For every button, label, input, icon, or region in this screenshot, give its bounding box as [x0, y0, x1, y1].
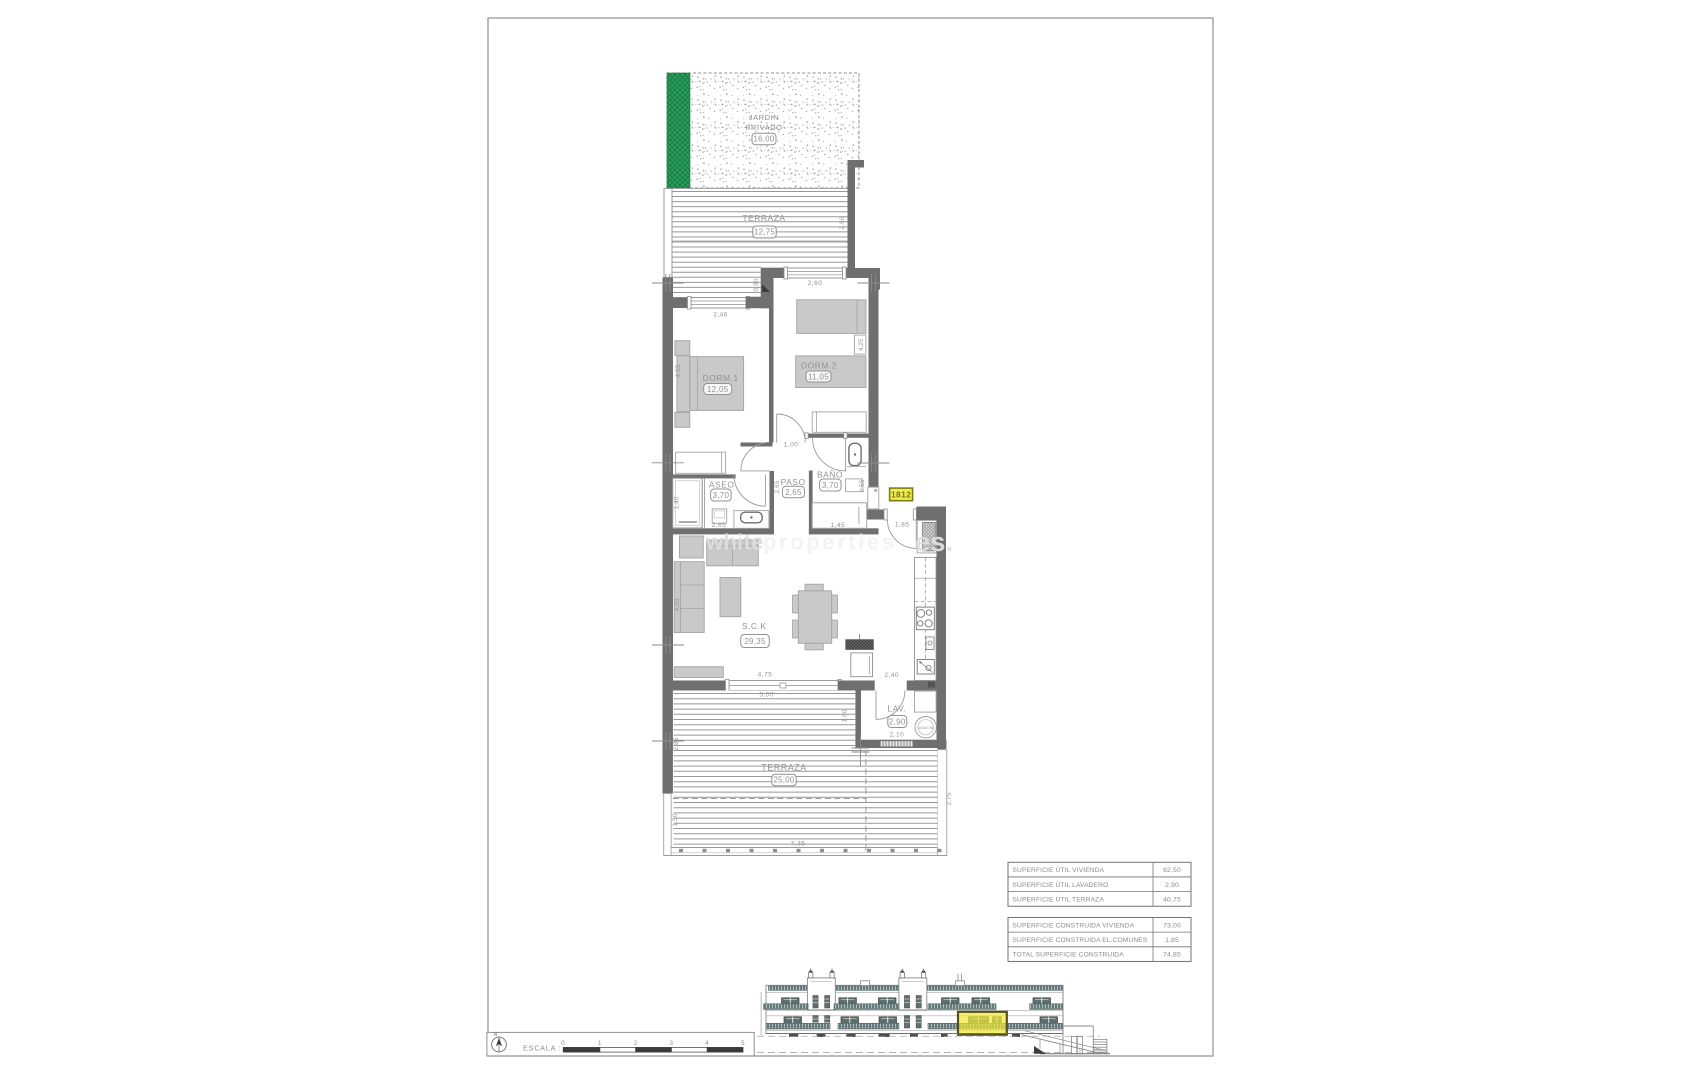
- svg-text:TERRAZA: TERRAZA: [742, 213, 785, 223]
- svg-text:5: 5: [741, 1040, 745, 1047]
- svg-text:3: 3: [669, 1040, 673, 1047]
- svg-text:SUPERFICIE CONSTRUIDA VIVIENDA: SUPERFICIE CONSTRUIDA VIVIENDA: [1013, 922, 1135, 929]
- svg-text:white: white: [705, 530, 764, 555]
- svg-text:2,75: 2,75: [946, 792, 953, 805]
- svg-text:ASEO: ASEO: [709, 480, 735, 490]
- svg-text:1,40: 1,40: [673, 496, 680, 509]
- svg-text:2,10: 2,10: [890, 732, 905, 739]
- svg-text:properties: properties: [763, 530, 897, 555]
- svg-text:2,90: 2,90: [1165, 882, 1179, 889]
- svg-text:TERRAZA: TERRAZA: [761, 763, 807, 773]
- svg-text:40,75: 40,75: [1163, 897, 1181, 904]
- svg-text:S.C.K: S.C.K: [742, 621, 767, 631]
- svg-text:SUPERFICIE ÚTIL TERRAZA: SUPERFICIE ÚTIL TERRAZA: [1013, 895, 1105, 904]
- svg-text:2,40: 2,40: [884, 672, 899, 679]
- svg-text:SUPERFICIE CONSTRUIDA EL.COMUN: SUPERFICIE CONSTRUIDA EL.COMUNES: [1013, 937, 1148, 944]
- svg-text:1,45: 1,45: [830, 522, 845, 529]
- svg-text:73,00: 73,00: [1163, 922, 1181, 929]
- svg-text:BAÑO: BAÑO: [817, 470, 843, 480]
- svg-text:4,25: 4,25: [858, 338, 865, 351]
- svg-text:12,05: 12,05: [707, 385, 729, 394]
- svg-text:TOTAL SUPERFICIE CONSTRUIDA: TOTAL SUPERFICIE CONSTRUIDA: [1013, 952, 1125, 959]
- svg-text:1,85: 1,85: [1165, 937, 1179, 944]
- svg-text:2,65: 2,65: [785, 488, 802, 497]
- svg-text:1,85: 1,85: [895, 522, 910, 529]
- svg-text:4,75: 4,75: [758, 672, 773, 679]
- svg-text:3,70: 3,70: [713, 491, 730, 500]
- svg-text:2,46: 2,46: [713, 312, 728, 319]
- svg-text:62,50: 62,50: [1163, 867, 1181, 874]
- svg-text:16,00: 16,00: [753, 135, 774, 144]
- svg-text:0: 0: [561, 1040, 565, 1047]
- svg-text:1,60: 1,60: [842, 709, 849, 722]
- svg-text:0,90: 0,90: [753, 278, 760, 291]
- svg-text:2,55: 2,55: [859, 479, 866, 492]
- svg-text:2,65: 2,65: [712, 522, 727, 529]
- svg-text:LAVADORA: LAVADORA: [917, 726, 935, 730]
- svg-text:ESCALA :: ESCALA :: [523, 1044, 561, 1053]
- svg-text:SUPERFICIE ÚTIL LAVADERO: SUPERFICIE ÚTIL LAVADERO: [1013, 880, 1109, 889]
- svg-text:11,05: 11,05: [808, 372, 829, 381]
- svg-text:3,70: 3,70: [822, 481, 839, 490]
- svg-text:DORM.2: DORM.2: [801, 361, 837, 371]
- svg-text:4: 4: [705, 1040, 709, 1047]
- svg-text:2: 2: [634, 1040, 638, 1047]
- svg-text:2,60: 2,60: [808, 280, 823, 287]
- svg-text:29,35: 29,35: [744, 637, 766, 646]
- svg-text:7,35: 7,35: [791, 841, 806, 848]
- svg-text:74,85: 74,85: [1163, 952, 1181, 959]
- svg-text:DORM.1: DORM.1: [703, 373, 739, 383]
- svg-text:1812: 1812: [891, 490, 911, 500]
- svg-text:SUPERFICIE ÚTIL VIVIENDA: SUPERFICIE ÚTIL VIVIENDA: [1013, 865, 1105, 874]
- svg-text:PASO: PASO: [781, 477, 806, 487]
- svg-text:12,75: 12,75: [754, 228, 775, 237]
- svg-text:4,00: 4,00: [674, 598, 681, 611]
- svg-text:25,00: 25,00: [773, 776, 794, 785]
- svg-text:4,55: 4,55: [675, 364, 682, 377]
- svg-text:2,85: 2,85: [673, 737, 680, 750]
- svg-text:1,00: 1,00: [784, 442, 799, 449]
- svg-text:N: N: [493, 1032, 497, 1038]
- svg-text:PRIVADO: PRIVADO: [745, 123, 782, 132]
- svg-text:es.: es.: [915, 527, 953, 557]
- svg-text:2,90: 2,90: [889, 717, 906, 726]
- svg-text:2,60: 2,60: [839, 216, 846, 229]
- svg-text:3,40: 3,40: [927, 635, 934, 648]
- svg-text:LAV.: LAV.: [887, 704, 906, 714]
- svg-text:JARDIN: JARDIN: [749, 113, 779, 122]
- svg-text:1: 1: [598, 1040, 602, 1047]
- svg-text:5,00: 5,00: [759, 692, 774, 699]
- svg-text:1,50: 1,50: [672, 813, 679, 826]
